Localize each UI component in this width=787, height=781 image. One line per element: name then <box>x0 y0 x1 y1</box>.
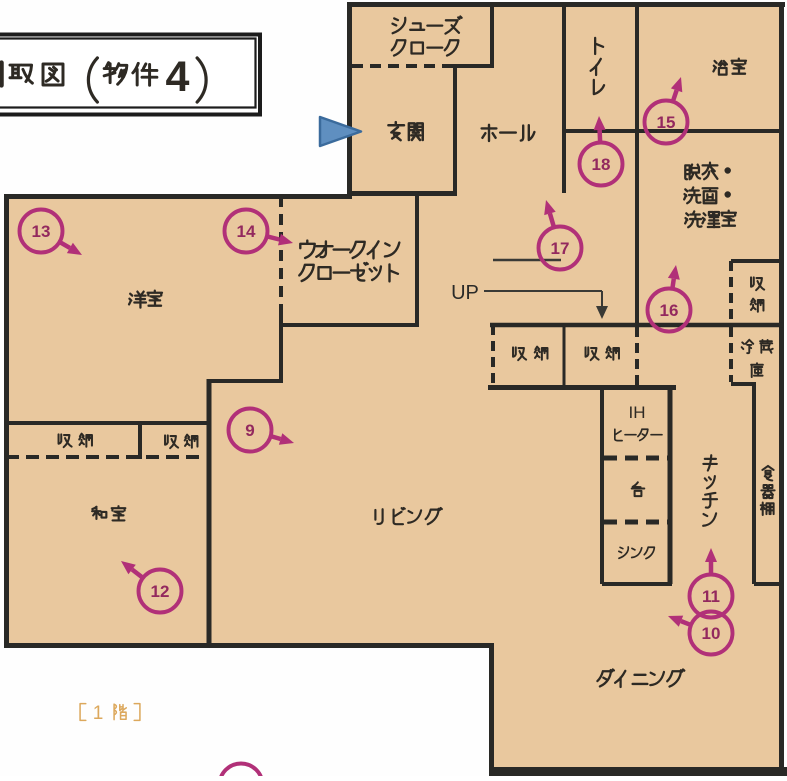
svg-text:1: 1 <box>93 703 104 724</box>
svg-text:UP: UP <box>451 282 479 304</box>
svg-text:IH: IH <box>629 403 646 422</box>
svg-text:4: 4 <box>166 53 190 101</box>
svg-text:17: 17 <box>551 239 570 258</box>
svg-text:10: 10 <box>702 624 721 643</box>
svg-text:11: 11 <box>702 587 720 606</box>
svg-text:12: 12 <box>151 582 170 601</box>
svg-text:9: 9 <box>245 421 254 440</box>
svg-text:13: 13 <box>32 222 51 241</box>
svg-text:14: 14 <box>237 222 256 241</box>
svg-text:15: 15 <box>657 113 676 132</box>
svg-text:18: 18 <box>592 155 611 174</box>
svg-text:16: 16 <box>660 301 679 320</box>
